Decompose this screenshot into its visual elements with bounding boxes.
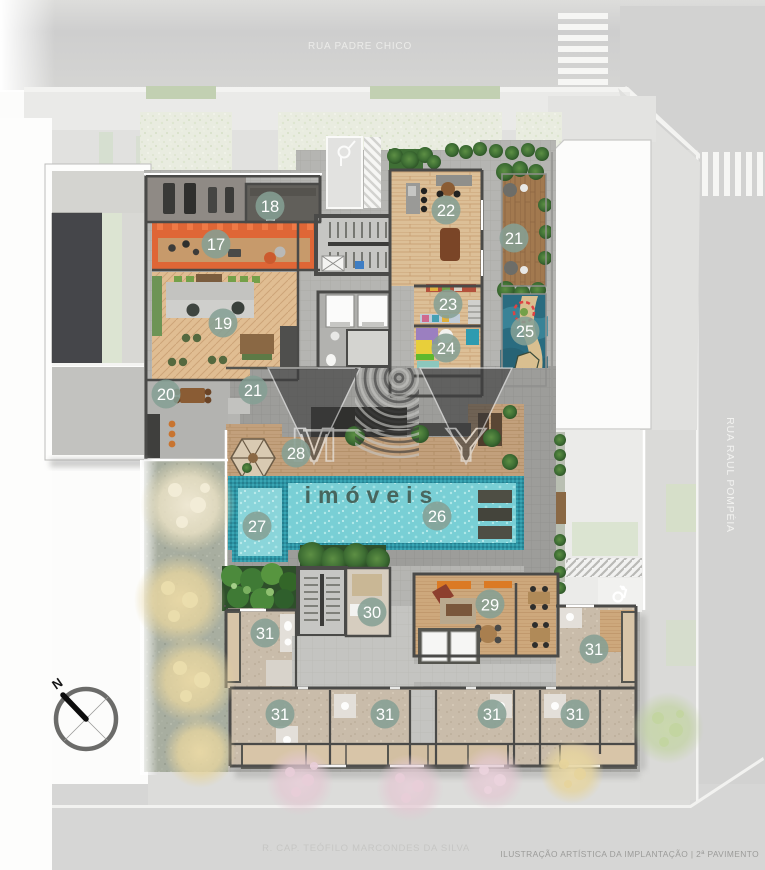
svg-text:31: 31 (256, 625, 274, 643)
svg-text:Y: Y (445, 418, 487, 471)
svg-text:28: 28 (287, 445, 305, 463)
svg-text:30: 30 (363, 604, 381, 622)
svg-text:22: 22 (437, 202, 455, 220)
svg-text:23: 23 (439, 296, 457, 314)
svg-text:27: 27 (248, 518, 266, 536)
svg-text:imóveis: imóveis (305, 482, 440, 508)
svg-text:19: 19 (214, 315, 232, 333)
svg-text:21: 21 (244, 382, 262, 400)
svg-text:26: 26 (428, 508, 446, 526)
svg-text:17: 17 (207, 236, 225, 254)
svg-text:29: 29 (481, 597, 499, 615)
svg-text:18: 18 (261, 198, 279, 216)
svg-text:RUA PADRE CHICO: RUA PADRE CHICO (308, 41, 412, 52)
svg-text:31: 31 (483, 706, 501, 724)
svg-text:31: 31 (271, 706, 289, 724)
svg-text:31: 31 (585, 641, 603, 659)
svg-text:ILUSTRAÇÃO ARTÍSTICA DA IMPLAN: ILUSTRAÇÃO ARTÍSTICA DA IMPLANTAÇÃO | 2ª… (500, 849, 759, 859)
svg-text:RUA RAUL POMPÉIA: RUA RAUL POMPÉIA (724, 417, 737, 533)
svg-text:24: 24 (437, 340, 455, 358)
svg-text:31: 31 (376, 706, 394, 724)
svg-text:31: 31 (566, 706, 584, 724)
svg-text:R. CAP. TEÓFILO MARCONDES DA S: R. CAP. TEÓFILO MARCONDES DA SILVA (262, 843, 470, 854)
svg-text:25: 25 (516, 323, 534, 341)
svg-text:20: 20 (157, 386, 175, 404)
svg-text:21: 21 (505, 230, 523, 248)
